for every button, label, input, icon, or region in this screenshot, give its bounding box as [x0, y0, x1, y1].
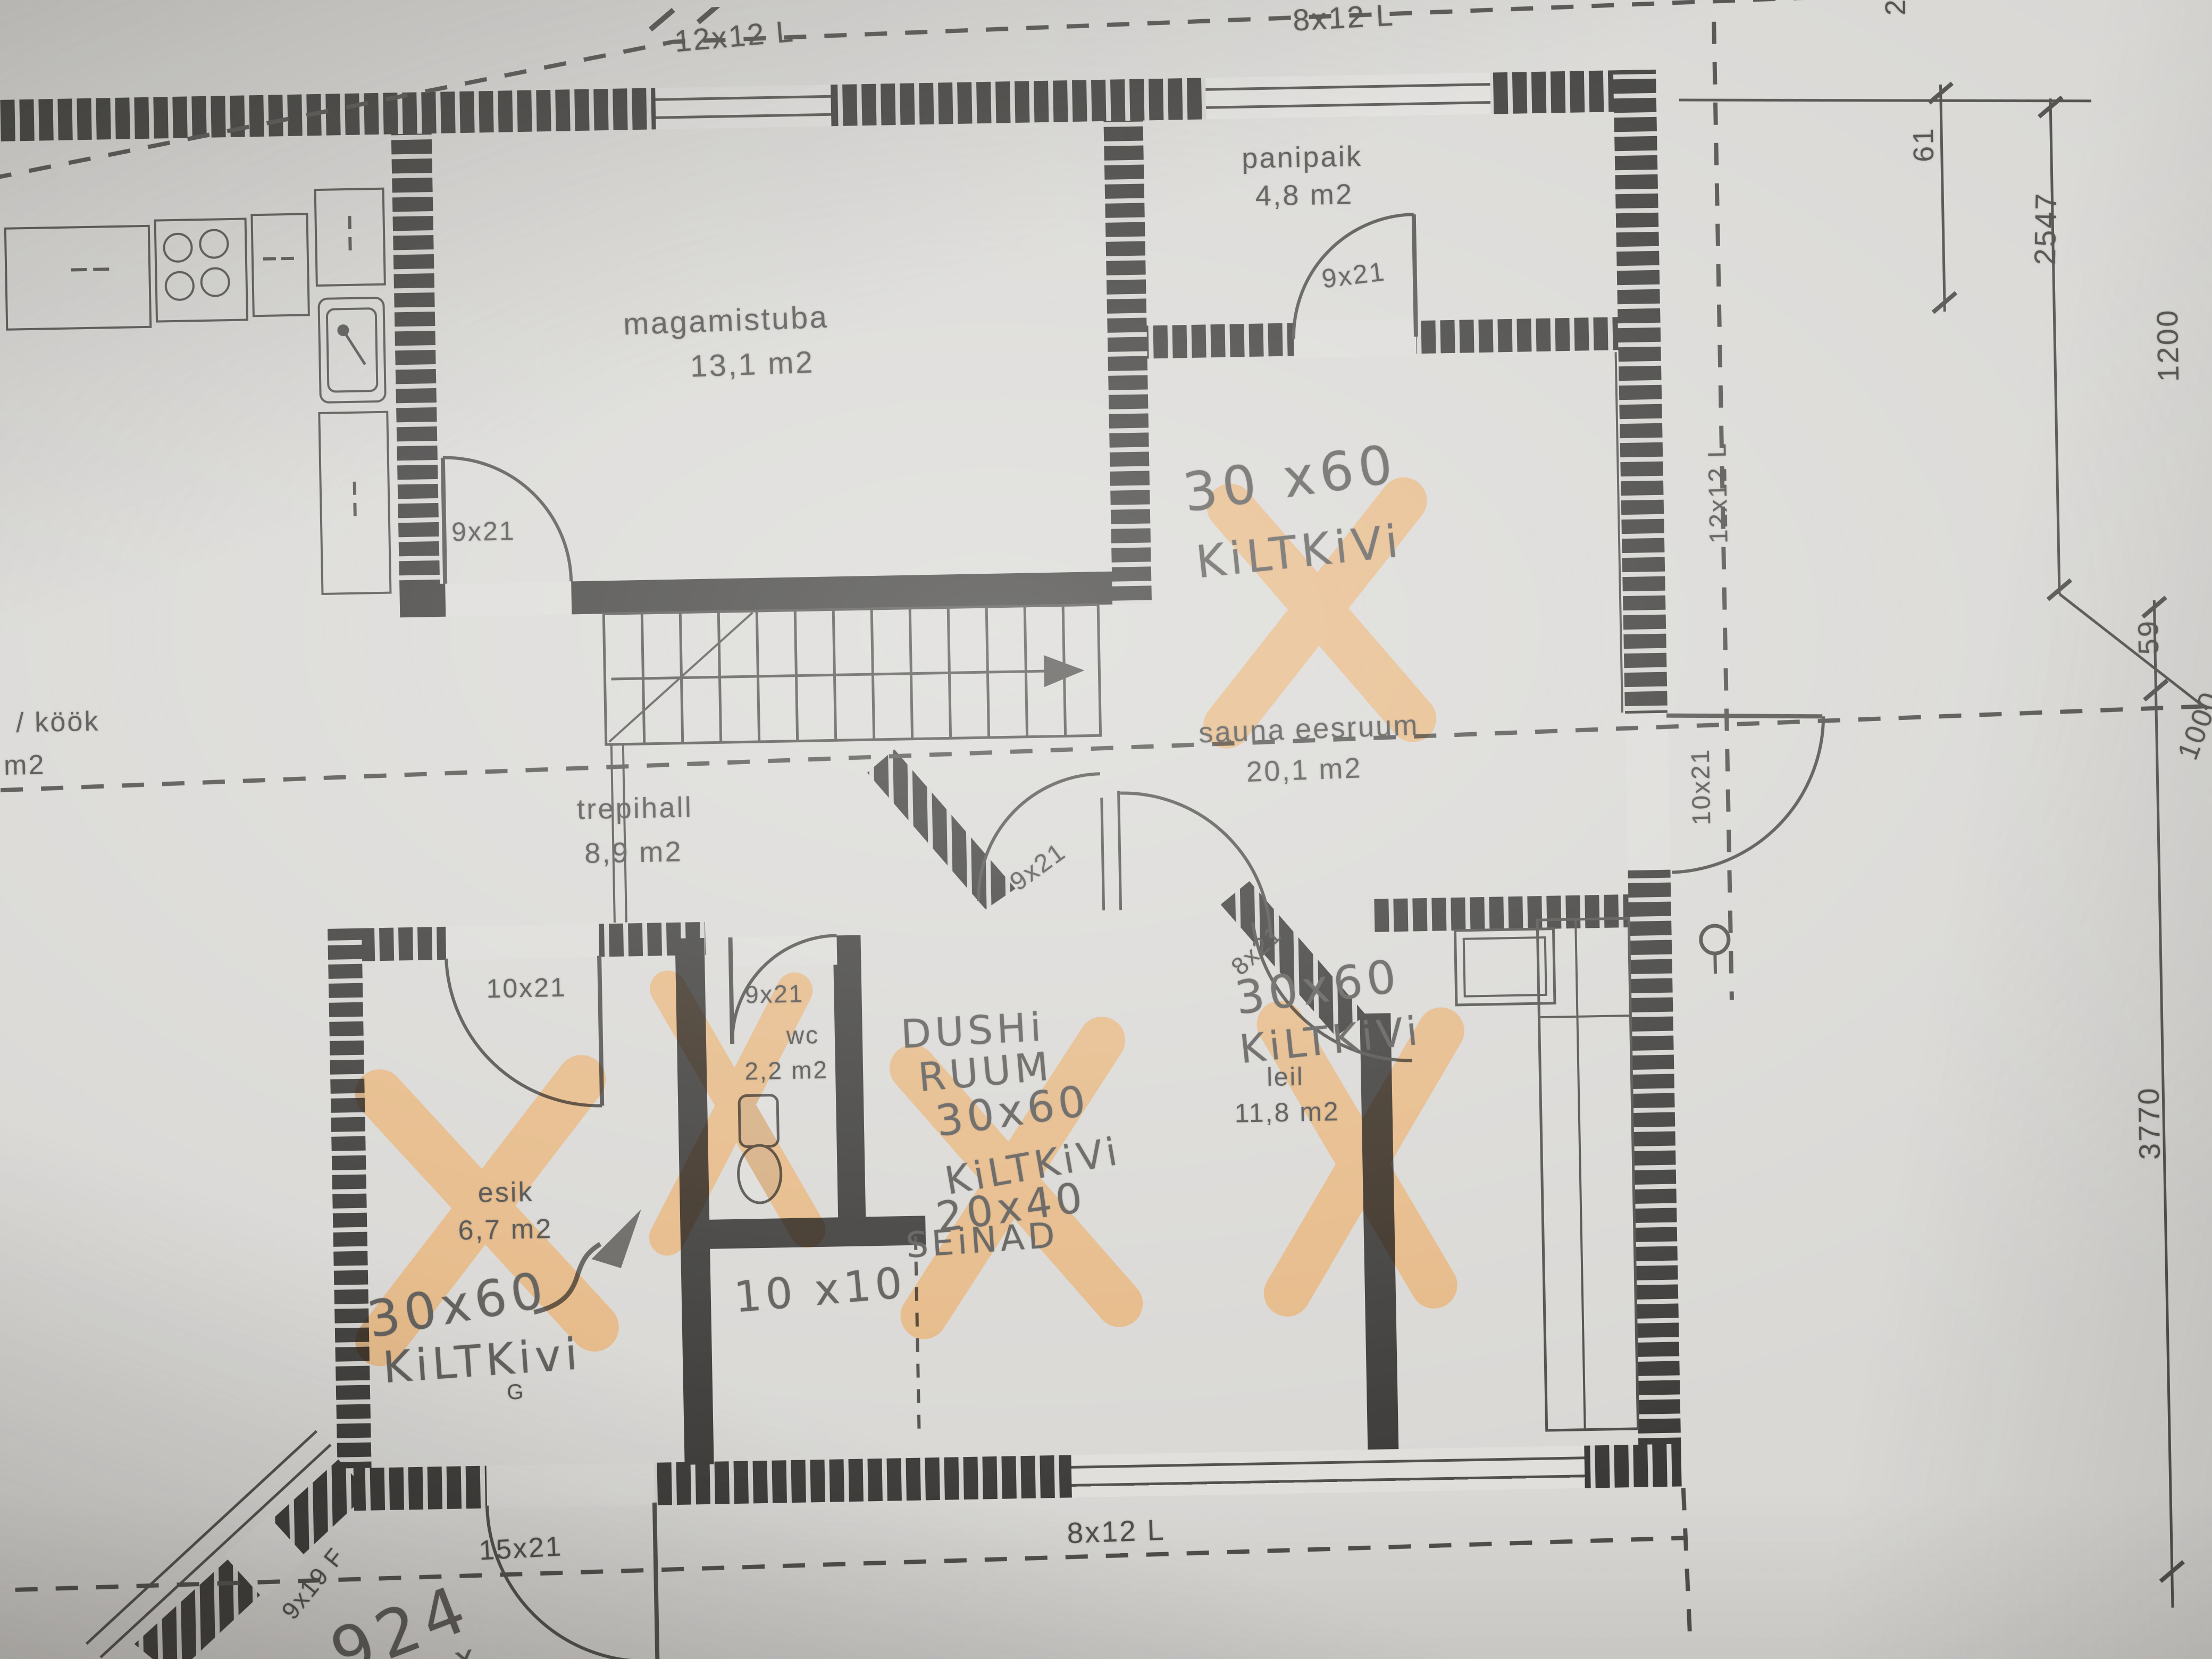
- door-label-magamistuba: 9x21: [451, 515, 516, 547]
- door-label-eesruum-exterior: 10x21: [1686, 748, 1717, 825]
- section-tick-icon: [698, 3, 722, 22]
- dimension-fragment: 2: [1879, 0, 1912, 16]
- room-name-wc: wc: [786, 1020, 819, 1050]
- room-area-panipaik: 4,8 m2: [1255, 178, 1354, 212]
- dimension-lines: [650, 0, 2212, 1635]
- dimension-3770: 3770: [2131, 1086, 2167, 1160]
- dimension-59: 59: [2132, 619, 2165, 655]
- window-label-top-right: 8x12 L: [1292, 0, 1396, 38]
- window-label-right: 12x12 L: [1703, 442, 1733, 544]
- room-name-esik: esik: [477, 1176, 534, 1209]
- dimension-1200: 1200: [2150, 308, 2186, 382]
- floorplan-photo: 12x12 L 8x12 L panipaik 4,8 m2 magamistu…: [0, 0, 2212, 1659]
- room-name-trepihall: trepihall: [576, 791, 693, 826]
- stove-icon: [155, 219, 247, 321]
- pencil-arrowhead-icon: [591, 1209, 642, 1269]
- floorplan: 12x12 L 8x12 L panipaik 4,8 m2 magamistu…: [0, 0, 2212, 1659]
- room-area-trepihall: 8,9 m2: [584, 835, 683, 870]
- door-label-entry: 15x21: [478, 1530, 563, 1566]
- room-area-leil: 11,8 m2: [1234, 1096, 1340, 1129]
- room-name-magamistuba: magamistuba: [623, 299, 829, 342]
- dimension-2547: 2547: [2027, 191, 2063, 265]
- room-area-magamistuba: 13,1 m2: [690, 344, 815, 384]
- interior-walls: [391, 112, 1639, 1470]
- door-stop-icon: [1700, 926, 1729, 954]
- dimension-61: 61: [1907, 127, 1940, 163]
- room-name-panipaik: panipaik: [1242, 140, 1363, 175]
- door-label-esik: 10x21: [486, 972, 567, 1004]
- kitchen-fixtures: [5, 189, 391, 600]
- room-area-wc: 2,2 m2: [744, 1055, 828, 1086]
- sauna-bench: [1537, 918, 1638, 1430]
- door-label-wc: 9x21: [745, 979, 805, 1009]
- room-name-kook: / köök: [16, 706, 100, 739]
- room-area-esik: 6,7 m2: [458, 1213, 553, 1246]
- window-label-bottom: 8x12 L: [1066, 1513, 1166, 1551]
- room-area-kook: m2: [4, 749, 46, 782]
- floorplan-linework: [0, 0, 2212, 1659]
- section-tick-icon: [650, 10, 674, 30]
- room-area-sauna-eesruum: 20,1 m2: [1246, 751, 1363, 789]
- sauna-fixtures: [1445, 352, 1638, 1432]
